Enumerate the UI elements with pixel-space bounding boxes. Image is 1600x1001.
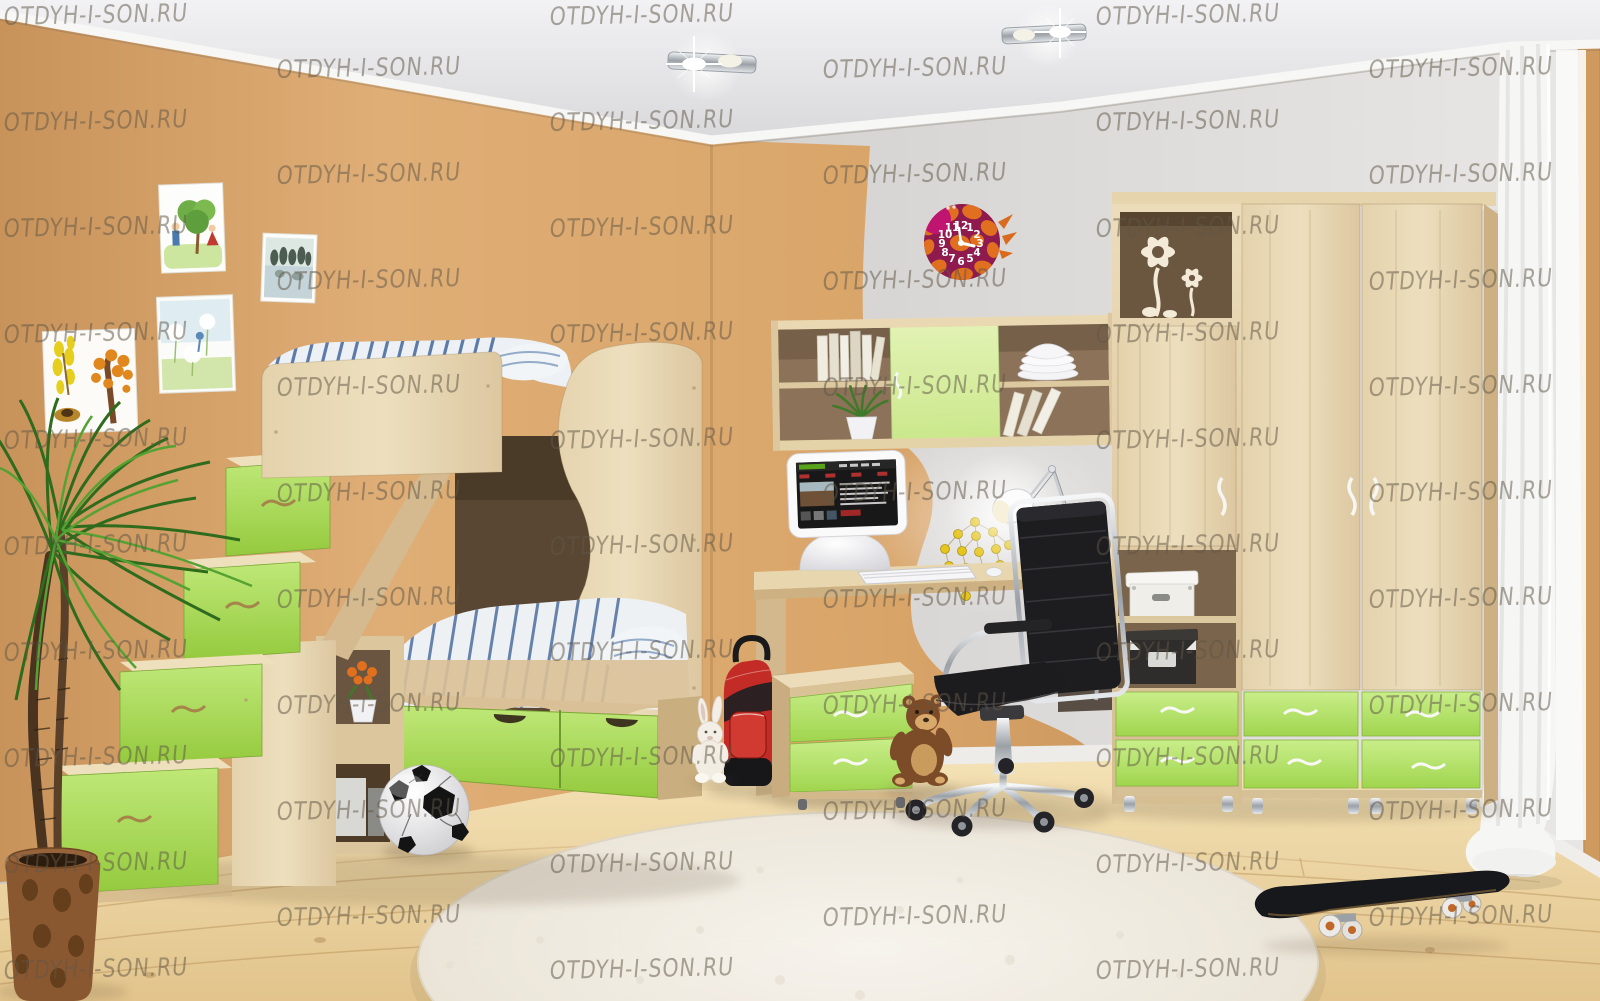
wardrobe-drawer [1244,740,1358,788]
room-photo: 12 1 2 3 4 5 6 7 8 9 10 11 [0,0,1600,1001]
wardrobe-side [1484,204,1498,806]
plant-pot [6,848,100,1001]
black-storage-box [1126,629,1198,684]
kids-drawing-dandelions [156,295,235,394]
computer-mouse [986,568,1002,577]
furniture-foot [1252,798,1263,814]
kids-drawing-tree [159,183,226,273]
shelf-green-door [890,324,1000,440]
niche-box [332,778,366,836]
clock-num-11: 11 [945,222,960,234]
furniture-foot [1222,796,1233,812]
room-scene: 12 1 2 3 4 5 6 7 8 9 10 11 [0,0,1600,1001]
furniture-foot [798,799,807,810]
wardrobe-door-left [1242,204,1360,690]
furniture-foot [896,797,905,808]
clock-num-5: 5 [966,253,973,265]
stair-drawer [120,664,262,764]
wardrobe-main [1242,204,1498,814]
clock-num-6: 6 [957,256,964,268]
tower-niche [1120,212,1232,318]
wardrobe-tower [1112,204,1242,812]
furniture-foot [1466,798,1477,814]
furniture-foot [1348,798,1359,814]
wall-shelf [771,313,1117,451]
window-light [1556,50,1586,840]
furniture-foot [1124,796,1135,812]
tower-door [1118,326,1236,546]
nightstand-side [772,672,790,798]
wardrobe-door-right [1362,204,1482,690]
wardrobe-unit [1083,192,1507,822]
backpack-pocket [730,712,766,758]
kids-drawing-landscape [261,233,317,303]
wall-corner [710,142,713,764]
tower-drawer [1116,740,1238,786]
clock-num-7: 7 [948,253,955,265]
clock-num-4: 4 [973,247,980,259]
tower-drawer [1116,692,1238,736]
white-storage-box [1126,571,1198,618]
furniture-foot [1370,798,1381,814]
upper-bunk-rail [262,352,502,478]
